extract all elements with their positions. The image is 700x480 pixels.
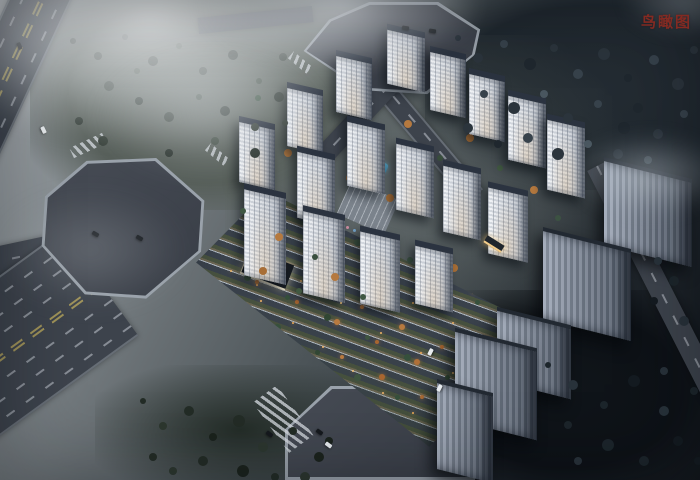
residential-tower [488, 181, 528, 262]
view-title-label: 鸟瞰图 [641, 11, 692, 32]
residential-tower [547, 114, 585, 199]
residential-tower [396, 138, 434, 219]
lane-marking [0, 255, 81, 480]
residential-tower [443, 160, 481, 241]
unlit-building-slab [437, 379, 493, 480]
aerial-render-canvas: 鸟瞰图 [0, 0, 700, 480]
villa-autumn-trees [255, 280, 259, 284]
residential-tower [336, 50, 372, 120]
center-line-yellow [0, 282, 101, 480]
tree-cluster-northeast [455, 35, 461, 41]
playground [346, 226, 349, 229]
tree-cluster-southeast [545, 362, 551, 368]
tree-cluster-foreground [240, 208, 246, 214]
tree-cluster-northwest [70, 38, 76, 44]
residential-tower [415, 240, 453, 313]
car [402, 26, 409, 31]
residential-tower [430, 46, 466, 118]
residential-tower [303, 205, 345, 303]
residential-tower [239, 116, 275, 190]
tree-cluster-southwest [140, 398, 146, 404]
residential-tower [387, 24, 425, 93]
residential-tower [360, 225, 400, 312]
residential-tower [469, 68, 505, 142]
residential-tower [287, 82, 323, 154]
residential-tower [244, 183, 286, 285]
residential-tower [347, 116, 385, 195]
villa-window-lights [230, 270, 232, 272]
residential-tower [508, 90, 546, 169]
tree-cluster-development [255, 95, 261, 101]
car [429, 29, 436, 34]
